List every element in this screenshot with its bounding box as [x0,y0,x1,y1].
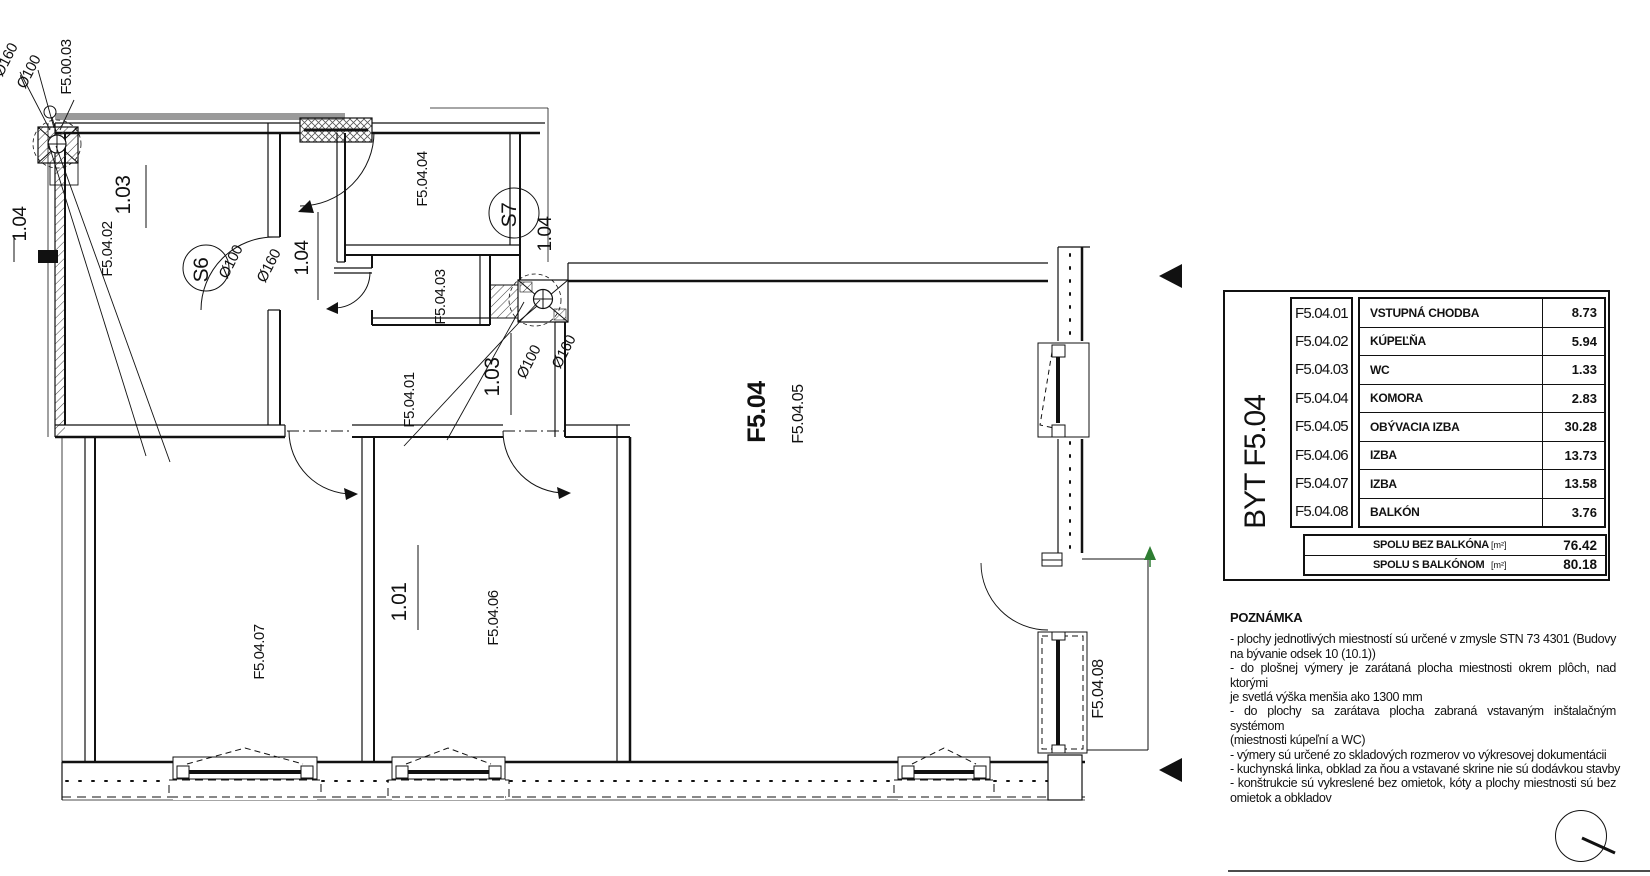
table-row: KÚPEĽŇA5.94 [1360,327,1604,356]
label-door-101: 1.01 [388,583,411,622]
label-dia160-bath: Ø160 [254,247,285,286]
room-area: 2.83 [1542,385,1604,413]
notes-block: POZNÁMKA - plochy jednotlivých miestnost… [1230,611,1616,805]
total-row: SPOLU S BALKÓNOM [m²] 80.18 [1305,556,1605,575]
rooms-bottom [62,425,630,762]
note-line: - kuchynská linka, obklad za ňou a vstav… [1230,762,1616,776]
room-code: F5.04.01 [1292,299,1351,327]
orientation-circle [1556,811,1616,862]
label-room-living: F5.04.05 [790,384,807,444]
window-bottom-1 [169,748,321,800]
label-dia100-bath: Ø100 [216,243,247,282]
label-room-komora: F5.04.04 [414,151,431,206]
wc-door-arc [334,272,370,308]
table-row: KOMORA2.83 [1360,384,1604,413]
note-line: - plochy jednotlivých miestností sú urče… [1230,632,1616,646]
room-code-column: F5.04.01 F5.04.02 F5.04.03 F5.04.04 F5.0… [1290,297,1353,528]
room-code: F5.04.06 [1292,441,1351,469]
total-value: 80.18 [1533,557,1605,572]
bedroom2-door-arc [289,431,352,494]
balcony-glazing [1038,632,1087,753]
room-table: BYT F5.04 F5.04.01 F5.04.02 F5.04.03 F5.… [1223,290,1610,581]
total-label: SPOLU BEZ BALKÓNA [1373,539,1491,551]
balcony [981,546,1156,753]
label-room-entry: F5.04.01 [401,372,418,427]
plan-labels: Ø160 Ø100 F5.00.03 1.04 1.03 F5.04.02 S6… [0,39,1107,718]
table-row: BALKÓN3.76 [1360,498,1604,527]
section-arrow-bottom [1159,758,1182,782]
label-room-wc: F5.04.03 [432,269,449,324]
note-line: - konštrukcie sú vykreslené bez omietok,… [1230,776,1616,790]
room-name: IZBA [1360,477,1542,491]
label-room-izba-a: F5.04.06 [485,590,502,645]
total-label: SPOLU S BALKÓNOM [1373,559,1491,571]
room-name: VSTUPNÁ CHODBA [1360,306,1542,320]
note-line: je svetlá výška menšia ako 1300 mm [1230,690,1616,704]
room-code: F5.04.02 [1292,327,1351,355]
total-unit: [m²] [1491,560,1533,570]
table-row: IZBA13.73 [1360,441,1604,470]
corridor-wall [287,425,630,500]
total-value: 76.42 [1533,538,1605,553]
room-code: F5.04.07 [1292,469,1351,497]
dimension-lines [146,165,511,630]
room-area: 30.28 [1542,413,1604,441]
door-swing-arrow [557,487,571,499]
room-area: 3.76 [1542,499,1604,527]
room-area: 13.73 [1542,442,1604,470]
fan-symbol-entry [14,70,170,462]
room-code: F5.04.05 [1292,413,1351,441]
label-unit: F5.04 [743,381,771,443]
label-shaft-s6: S6 [190,258,213,283]
room-name: BALKÓN [1360,505,1542,519]
label-dia100-entry: Ø100 [14,53,45,92]
room-name: WC [1360,363,1542,377]
wall-section-mark [38,250,58,263]
balcony-door-arc [981,563,1048,630]
room-area: 5.94 [1542,328,1604,356]
door-swing-arrow [344,488,358,500]
label-dia160-shaft: Ø160 [549,333,580,372]
balcony-door-hinge [1042,553,1062,560]
label-door-103-a: 1.03 [112,176,135,215]
note-line: omietok a obkladov [1230,791,1616,805]
survey-point-marker [1144,546,1156,560]
window-bottom-2 [388,748,509,800]
table-row: OBÝVACIA IZBA30.28 [1360,412,1604,441]
notes-title: POZNÁMKA [1230,611,1616,625]
room-name: IZBA [1360,448,1542,462]
room-wc [326,255,490,325]
window-bottom-3 [894,748,994,800]
label-door-104-a: 1.04 [10,206,31,242]
total-row: SPOLU BEZ BALKÓNA [m²] 76.42 [1305,536,1605,556]
label-room-balcony: F5.04.08 [1090,659,1107,719]
label-door-104-c: 1.04 [535,216,556,252]
window-right [1036,341,1091,439]
note-line: (miestnosti kúpeľní a WC) [1230,733,1616,747]
label-room-izba-b: F5.04.07 [251,624,268,679]
note-line: - do plošnej výmery je zarátaná plocha m… [1230,661,1616,690]
label-door-103-b: 1.03 [481,358,504,397]
label-corridor-ref: F5.00.03 [58,39,75,94]
floorplan-sheet: Ø160 Ø100 F5.00.03 1.04 1.03 F5.04.02 S6… [0,0,1650,876]
table-row: IZBA13.58 [1360,469,1604,498]
table-row: WC1.33 [1360,355,1604,384]
room-name: OBÝVACIA IZBA [1360,420,1542,434]
room-code: F5.04.03 [1292,356,1351,384]
label-door-104-b: 1.04 [292,240,313,276]
room-area: 13.58 [1542,470,1604,498]
room-area: 1.33 [1542,356,1604,384]
room-code: F5.04.04 [1292,384,1351,412]
door-swing-arrow [326,302,338,314]
room-code: F5.04.08 [1292,498,1351,526]
label-dia100-shaft: Ø100 [514,343,545,382]
door-swing-arrow [298,200,314,213]
room-name: KOMORA [1360,391,1542,405]
room-name-column: VSTUPNÁ CHODBA8.73 KÚPEĽŇA5.94 WC1.33 KO… [1358,297,1606,528]
totals-box: SPOLU BEZ BALKÓNA [m²] 76.42 SPOLU S BAL… [1303,534,1607,576]
room-name: KÚPEĽŇA [1360,334,1542,348]
unit-title-text: BYT F5.04 [1239,395,1273,529]
unit-title: BYT F5.04 [1221,382,1291,542]
note-line: - do plochy sa zarátava plocha zabraná v… [1230,704,1616,733]
table-row: VSTUPNÁ CHODBA8.73 [1360,299,1604,327]
note-line: - výmery sú určené zo skladových rozmero… [1230,748,1616,762]
total-unit: [m²] [1491,540,1533,550]
label-room-bathroom: F5.04.02 [99,221,116,276]
bedroom1-door-arc [503,431,565,493]
label-shaft-s7: S7 [498,203,521,228]
room-area: 8.73 [1542,299,1604,327]
section-arrow-top [1159,264,1182,288]
note-line: na bývanie odsek 10 (10.1)) [1230,647,1616,661]
